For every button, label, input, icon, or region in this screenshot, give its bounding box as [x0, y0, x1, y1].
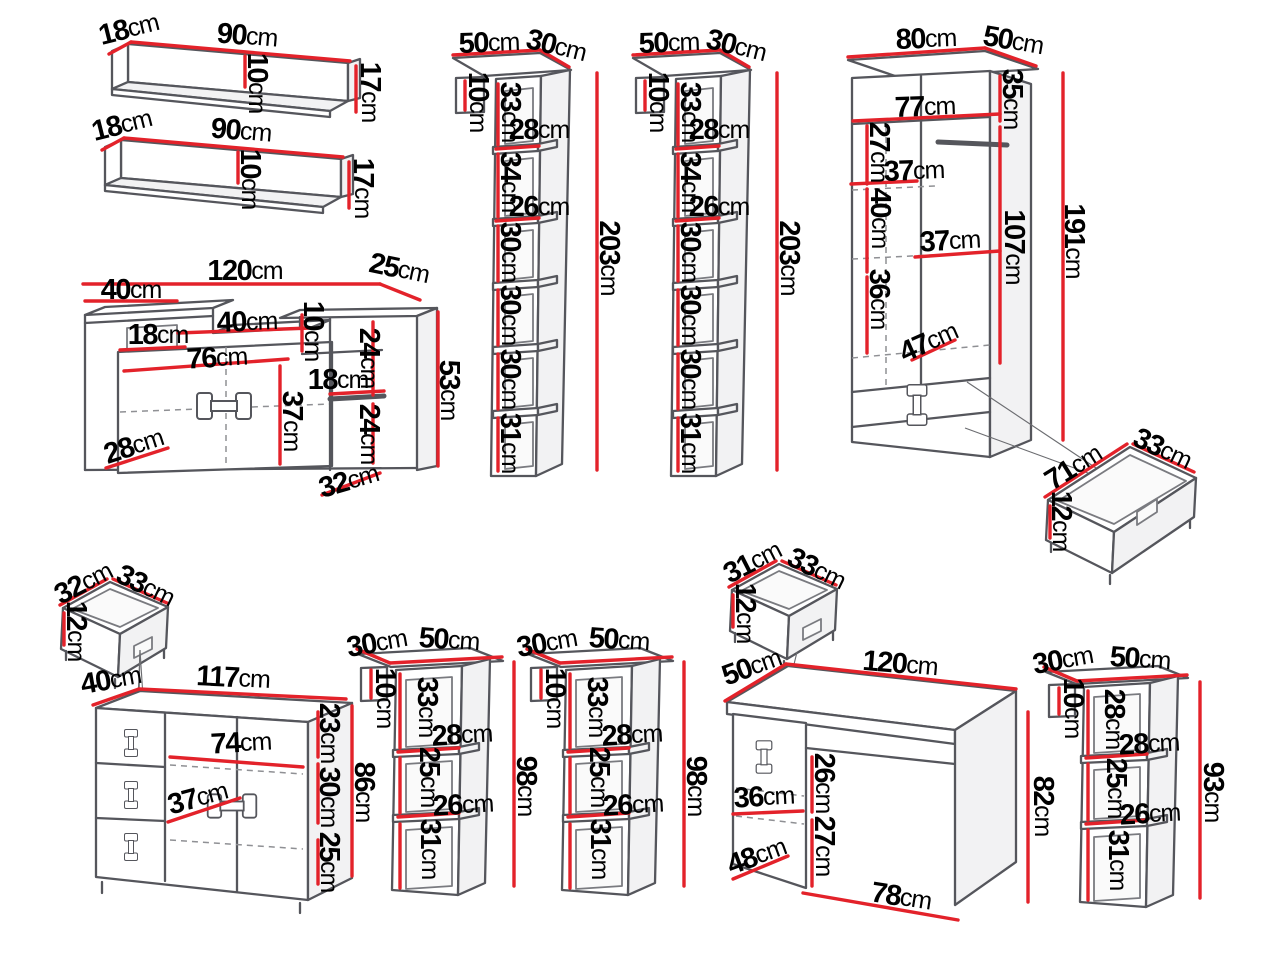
dim-label: 40cm	[864, 188, 896, 249]
dim-label: 77cm	[894, 90, 956, 124]
dim-label: 26cm	[432, 787, 494, 822]
dim-label: 50cm	[458, 26, 520, 60]
dresser: 40cm 117cm 23cm 74cm 30cm 37cm 25cm 86cm	[78, 659, 380, 913]
dim-label: 10cm	[234, 149, 266, 210]
dim-label: 28cm	[1118, 726, 1180, 761]
dim-label: 50cm	[638, 26, 700, 60]
dim-label: 40cm	[101, 274, 162, 306]
dim-label: 17cm	[347, 158, 379, 219]
shelf-unit-2: 30cm 50cm 10cm 33cm 28cm 25cm 26cm 31cm …	[514, 622, 712, 895]
dim-label: 80cm	[895, 22, 957, 56]
dim-label: 10cm	[241, 53, 273, 114]
dim-label: 12cm	[60, 601, 92, 662]
dim-label: 26cm	[602, 787, 664, 822]
dim-label: 31cm	[414, 819, 446, 880]
bookcase-1: 50cm 30cm 10cm 33cm 28cm 34cm 26cm 30cm …	[453, 23, 625, 476]
dim-label: 18cm	[128, 319, 189, 351]
dim-label: 10cm	[369, 668, 401, 729]
dim-label: 120cm	[207, 255, 282, 287]
dim-label: 50cm	[418, 622, 481, 658]
tv-stand: 120cm 25cm 40cm 18cm 40cm 10cm 24cm 76cm…	[83, 247, 465, 505]
dim-label: 25cm	[313, 832, 345, 893]
dim-label: 18cm	[308, 364, 369, 396]
dim-label: 76cm	[186, 340, 248, 375]
dim-label: 117cm	[195, 660, 270, 696]
dim-label: 37cm	[883, 154, 945, 188]
dim-label: 36cm	[733, 779, 795, 814]
dim-label: 12cm	[1045, 491, 1077, 552]
shelf-unit-3: 30cm 50cm 10cm 28cm 28cm 25cm 26cm 31cm …	[1030, 639, 1229, 907]
dim-label: 30cm	[494, 285, 526, 346]
dim-label: 26cm	[808, 753, 840, 814]
dim-label: 10cm	[1057, 678, 1089, 739]
dim-label: 36cm	[863, 269, 895, 330]
dim-label: 98cm	[680, 756, 712, 817]
furniture-dimensions-diagram: 18cm 90cm 10cm 17cm 18cm 90cm 10cm 17cm	[0, 0, 1280, 960]
dim-label: 30cm	[674, 349, 706, 410]
dim-label: 17cm	[354, 62, 386, 123]
dim-label: 50cm	[1109, 641, 1172, 677]
dim-label: 23cm	[313, 703, 345, 764]
dim-label: 98cm	[510, 756, 542, 817]
dim-label: 28cm	[689, 114, 750, 146]
dim-label: 107cm	[998, 209, 1030, 284]
dim-label: 26cm	[1119, 796, 1181, 831]
dim-label: 191cm	[1058, 203, 1090, 278]
dim-label: 37cm	[919, 223, 981, 258]
dim-label: 90cm	[210, 112, 273, 149]
dim-label: 40cm	[216, 305, 278, 339]
dim-label: 120cm	[861, 644, 939, 682]
bookcase-2: 50cm 30cm 10cm 33cm 28cm 34cm 26cm 30cm …	[633, 23, 805, 476]
wardrobe: 80cm 50cm 35cm 77cm 27cm 37cm 40cm 37cm …	[848, 20, 1096, 473]
dim-label: 90cm	[216, 17, 279, 54]
dim-label: 24cm	[353, 404, 385, 465]
dim-label: 31cm	[584, 819, 616, 880]
shelf-unit-1: 30cm 50cm 10cm 33cm 28cm 25cm 26cm 31cm …	[344, 622, 542, 895]
dim-label: 10cm	[642, 72, 674, 133]
dim-label: 30cm	[674, 222, 706, 283]
dim-label: 93cm	[1197, 762, 1229, 823]
dim-label: 10cm	[297, 301, 329, 362]
dim-label: 30cm	[313, 767, 345, 828]
dim-label: 37cm	[276, 391, 308, 452]
dim-label: 35cm	[996, 69, 1028, 130]
dim-label: 10cm	[539, 668, 571, 729]
dim-label: 53cm	[433, 360, 465, 421]
dim-label: 28cm	[509, 114, 570, 146]
dim-label: 26cm	[509, 191, 570, 223]
desk: 50cm 120cm 26cm 36cm 27cm 48cm 78cm 82cm	[718, 641, 1060, 920]
wall-shelf-2: 18cm 90cm 10cm 17cm	[88, 102, 379, 219]
dim-label: 86cm	[348, 762, 380, 823]
dim-label: 82cm	[1027, 776, 1059, 837]
dim-label: 31cm	[1102, 830, 1134, 891]
dim-label: 30cm	[494, 222, 526, 283]
dim-label: 50cm	[588, 622, 651, 658]
dim-label: 27cm	[808, 816, 840, 877]
dim-label: 74cm	[210, 725, 272, 760]
dim-label: 26cm	[689, 191, 750, 223]
dim-label: 203cm	[773, 220, 805, 295]
dim-label: 30cm	[674, 285, 706, 346]
dim-label: 10cm	[462, 72, 494, 133]
dim-label: 203cm	[593, 220, 625, 295]
dim-label: 12cm	[729, 583, 761, 644]
dim-label: 30cm	[494, 349, 526, 410]
dim-label: 31cm	[674, 413, 706, 474]
dim-label: 31cm	[494, 413, 526, 474]
